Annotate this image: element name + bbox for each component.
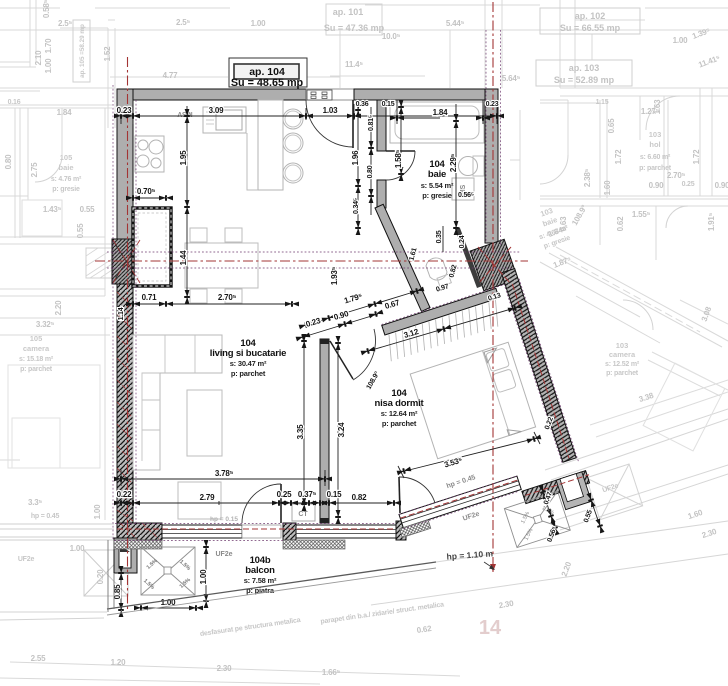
- svg-text:0.55: 0.55: [80, 205, 96, 214]
- svg-text:p: gresie: p: gresie: [422, 191, 451, 200]
- svg-text:3.35: 3.35: [296, 424, 305, 440]
- svg-text:2.30: 2.30: [217, 664, 233, 673]
- svg-text:p: gresie: p: gresie: [52, 186, 80, 193]
- svg-text:105: 105: [60, 153, 73, 162]
- svg-text:2.55: 2.55: [31, 654, 47, 663]
- svg-text:0.65: 0.65: [607, 118, 616, 134]
- svg-text:1.60: 1.60: [603, 180, 612, 196]
- svg-text:s: 5.54 m²: s: 5.54 m²: [421, 181, 454, 190]
- svg-text:0.34⁵: 0.34⁵: [353, 198, 360, 214]
- svg-text:0.15: 0.15: [327, 490, 343, 499]
- svg-text:1.84: 1.84: [57, 108, 73, 117]
- svg-text:0.70⁵: 0.70⁵: [137, 187, 156, 196]
- svg-text:1.72: 1.72: [614, 149, 623, 165]
- svg-text:0.56⁵: 0.56⁵: [458, 192, 474, 199]
- svg-text:3.32⁵: 3.32⁵: [36, 320, 55, 329]
- svg-text:camera: camera: [23, 344, 50, 353]
- svg-text:Su = 66.55 mp: Su = 66.55 mp: [560, 23, 621, 33]
- svg-text:0.25: 0.25: [277, 490, 293, 499]
- svg-text:hp = 0.15: hp = 0.15: [210, 516, 238, 523]
- svg-text:s: 15.18 m²: s: 15.18 m²: [19, 356, 54, 363]
- svg-text:2.70⁵: 2.70⁵: [667, 171, 686, 180]
- svg-text:1.03: 1.03: [323, 106, 339, 115]
- svg-text:1.70: 1.70: [44, 38, 53, 54]
- svg-text:11.4⁵: 11.4⁵: [345, 60, 363, 69]
- svg-text:UF2e: UF2e: [18, 556, 35, 563]
- svg-text:ap. 101: ap. 101: [333, 7, 364, 17]
- svg-text:1.15: 1.15: [596, 99, 609, 106]
- svg-text:0.36: 0.36: [356, 101, 369, 108]
- svg-text:0.82: 0.82: [352, 493, 368, 502]
- svg-text:s: 12.64 m²: s: 12.64 m²: [381, 409, 418, 418]
- svg-text:3.24: 3.24: [337, 422, 346, 438]
- svg-text:0.58⁵: 0.58⁵: [42, 0, 51, 18]
- svg-text:1.27⁵: 1.27⁵: [641, 107, 660, 116]
- svg-text:2.38⁵: 2.38⁵: [583, 168, 592, 187]
- svg-text:camera: camera: [609, 350, 636, 359]
- svg-text:0.22: 0.22: [117, 490, 133, 499]
- svg-text:1.44: 1.44: [179, 250, 188, 266]
- svg-text:s: 7.58 m²: s: 7.58 m²: [244, 576, 277, 585]
- svg-text:p: parchet: p: parchet: [382, 419, 417, 428]
- svg-text:baie: baie: [428, 169, 446, 180]
- svg-text:103: 103: [649, 130, 662, 139]
- svg-text:1.00: 1.00: [93, 504, 102, 520]
- svg-text:2.5⁵: 2.5⁵: [58, 19, 73, 28]
- svg-text:5.44⁵: 5.44⁵: [446, 19, 465, 28]
- svg-text:0.35: 0.35: [436, 230, 443, 243]
- svg-text:0.16: 0.16: [8, 99, 21, 106]
- svg-text:4.77: 4.77: [163, 71, 179, 80]
- svg-text:s: 30.47 m²: s: 30.47 m²: [230, 359, 267, 368]
- svg-text:Su = 47.36 mp: Su = 47.36 mp: [324, 23, 385, 33]
- svg-text:hp = 0.45: hp = 0.45: [31, 513, 60, 520]
- svg-text:Su = 48.65 mp: Su = 48.65 mp: [231, 77, 304, 89]
- svg-text:2.5⁵: 2.5⁵: [176, 18, 191, 27]
- svg-text:p: parchet: p: parchet: [606, 370, 639, 377]
- svg-text:Su = 52.89 mp: Su = 52.89 mp: [554, 75, 615, 85]
- svg-text:0.81⁵: 0.81⁵: [368, 115, 375, 131]
- svg-text:UF2e: UF2e: [215, 551, 232, 558]
- svg-text:1.91⁵: 1.91⁵: [707, 212, 716, 231]
- svg-text:1.43⁵: 1.43⁵: [43, 205, 62, 214]
- svg-text:2.20: 2.20: [54, 300, 63, 316]
- svg-text:p: parchet: p: parchet: [20, 366, 53, 373]
- svg-text:ap. 103: ap. 103: [569, 63, 600, 73]
- svg-text:10.0⁵: 10.0⁵: [382, 32, 401, 41]
- svg-text:1.93⁵: 1.93⁵: [330, 266, 339, 285]
- svg-text:0.55: 0.55: [76, 223, 85, 239]
- svg-text:0.15: 0.15: [382, 101, 395, 108]
- svg-text:s: 12.52 m²: s: 12.52 m²: [605, 361, 640, 368]
- svg-text:nisa dormit: nisa dormit: [374, 398, 424, 409]
- svg-text:1.00: 1.00: [673, 36, 689, 45]
- svg-text:0.62: 0.62: [616, 216, 625, 232]
- svg-text:105: 105: [30, 334, 43, 343]
- svg-text:0.25: 0.25: [682, 181, 695, 188]
- svg-text:p: parchet: p: parchet: [231, 369, 266, 378]
- svg-text:0.71: 0.71: [142, 293, 158, 302]
- svg-text:balcon: balcon: [245, 565, 275, 576]
- svg-text:1.58⁵: 1.58⁵: [394, 149, 403, 168]
- svg-text:hol: hol: [649, 140, 660, 149]
- svg-text:2.10: 2.10: [34, 50, 43, 66]
- svg-text:1.52: 1.52: [103, 46, 112, 62]
- svg-text:1.84: 1.84: [433, 108, 449, 117]
- svg-text:103: 103: [616, 341, 629, 350]
- svg-text:2.79: 2.79: [200, 493, 216, 502]
- svg-text:3.3⁵: 3.3⁵: [28, 498, 43, 507]
- svg-text:5.64⁵: 5.64⁵: [502, 74, 521, 83]
- svg-text:2.29⁵: 2.29⁵: [449, 153, 458, 172]
- svg-text:1.66⁵: 1.66⁵: [322, 668, 341, 677]
- svg-text:1.00: 1.00: [44, 58, 53, 74]
- svg-text:1.55⁵: 1.55⁵: [632, 210, 651, 219]
- svg-text:14: 14: [479, 617, 502, 639]
- svg-text:0.37⁵: 0.37⁵: [298, 490, 317, 499]
- svg-text:ap. 105 =58.29 mp: ap. 105 =58.29 mp: [79, 24, 86, 78]
- svg-text:living si bucatarie: living si bucatarie: [210, 348, 286, 359]
- svg-text:2.70⁵: 2.70⁵: [218, 293, 237, 302]
- svg-text:s: 6.60 m²: s: 6.60 m²: [640, 154, 671, 161]
- svg-text:baie: baie: [58, 163, 73, 172]
- svg-text:0.90: 0.90: [649, 181, 665, 190]
- svg-text:1.00: 1.00: [251, 19, 267, 28]
- svg-text:0.23: 0.23: [486, 101, 499, 108]
- svg-text:ap. 102: ap. 102: [575, 11, 606, 21]
- svg-text:3.09: 3.09: [209, 106, 225, 115]
- svg-text:1.96: 1.96: [351, 150, 360, 166]
- svg-text:1.72: 1.72: [692, 149, 701, 165]
- svg-text:2.75: 2.75: [30, 162, 39, 178]
- svg-text:1.00: 1.00: [70, 544, 86, 553]
- svg-text:CT: CT: [298, 511, 308, 518]
- svg-text:0.24: 0.24: [459, 235, 466, 248]
- svg-text:1.00: 1.00: [199, 569, 208, 585]
- svg-text:1.14: 1.14: [118, 307, 125, 320]
- svg-text:0.80: 0.80: [367, 165, 374, 178]
- svg-text:0.20: 0.20: [96, 569, 105, 585]
- svg-text:1.95: 1.95: [179, 150, 188, 166]
- svg-text:0.90: 0.90: [715, 181, 728, 190]
- svg-text:1.20: 1.20: [111, 658, 127, 667]
- svg-text:0.80: 0.80: [4, 154, 13, 170]
- svg-text:s: 4.76 m²: s: 4.76 m²: [51, 176, 82, 183]
- svg-text:3.78⁵: 3.78⁵: [215, 469, 234, 478]
- svg-text:0.23: 0.23: [117, 106, 133, 115]
